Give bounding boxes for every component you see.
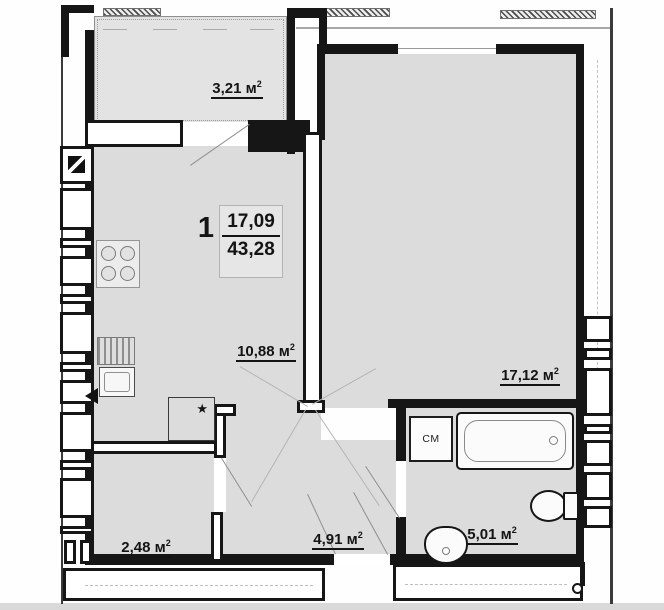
washing-machine-label: СМ	[422, 433, 439, 445]
window-box	[60, 312, 94, 354]
window-box	[584, 440, 612, 466]
window-box	[60, 188, 94, 230]
balcony-sill-dash	[203, 29, 227, 30]
window-box	[584, 348, 612, 360]
balcony-area-text: 3,21 м2	[211, 79, 263, 99]
apartment-number: 1	[186, 212, 214, 245]
toilet-tank-icon	[563, 492, 579, 520]
window-box	[584, 368, 612, 416]
top-outer-line	[296, 27, 612, 29]
bathroom-door-opening	[396, 461, 406, 517]
window-box	[60, 478, 94, 518]
living-window-opening	[398, 44, 496, 54]
balcony-area	[94, 16, 287, 124]
kitchen-top-right-wall	[248, 120, 310, 152]
window-box	[60, 256, 94, 286]
hatch-strip	[103, 8, 161, 16]
apartment-area-summary: 17,09 43,28	[219, 205, 283, 278]
stove-burner-icon	[101, 266, 116, 281]
sink-tap-icon	[442, 547, 450, 555]
window-box	[60, 294, 94, 304]
living-top-wall	[496, 44, 584, 54]
corridor-glass-line	[405, 584, 567, 585]
top-jog-wall	[319, 8, 327, 48]
kitchen-living-partition	[303, 132, 322, 408]
stove-burner-icon	[120, 266, 135, 281]
hatch-strip	[318, 8, 390, 17]
window-box	[60, 362, 94, 372]
wall-segment	[61, 5, 69, 57]
balcony-right-wall	[287, 8, 295, 154]
balcony-sill-dash	[153, 29, 177, 30]
balcony-insulation-border	[97, 19, 284, 121]
storage-area-text: 2,48 м2	[120, 538, 172, 558]
corridor-box	[393, 564, 583, 601]
entry-arrow-icon	[85, 388, 98, 404]
living-room-area-text: 17,12 м2	[500, 366, 560, 386]
storage-partition-arm	[214, 404, 236, 416]
storage-partition-lower	[211, 512, 223, 562]
bathtub-icon	[456, 412, 574, 470]
wall-leg	[80, 540, 92, 564]
apartment-living-area: 17,09	[222, 211, 280, 237]
kitchen-sink-icon	[99, 367, 135, 397]
right-exterior-wall	[576, 44, 584, 565]
kitchen-area-label: 10,88 м2	[216, 342, 316, 362]
storage-top-wall	[85, 441, 222, 454]
bathroom-area-label: 5,01 м2	[442, 525, 542, 545]
entrance-door-opening	[334, 554, 390, 565]
window-box	[60, 238, 94, 248]
balcony-sill-dash	[250, 29, 274, 30]
living-room-area	[322, 50, 580, 408]
hallway-area-text: 4,91 м2	[312, 530, 364, 550]
floor-plan: 3,21 м2 10,88 м2 17,12 м2 2,48 м2 4,91 м…	[0, 0, 664, 610]
corridor-glass-line	[85, 585, 313, 586]
apartment-total-area: 43,28	[220, 239, 282, 261]
bathtub-drain-icon	[549, 436, 558, 445]
vent-shaft-box	[60, 146, 94, 184]
window-box	[60, 460, 94, 470]
wall-leg	[64, 540, 76, 564]
kitchen-sink-basin	[104, 372, 130, 392]
window-box	[60, 412, 94, 452]
balcony-kitchen-wall	[85, 120, 183, 147]
living-left-wall	[317, 44, 325, 140]
vent-shaft-icon	[68, 156, 85, 173]
window-box	[60, 526, 94, 534]
bathroom-left-wall	[396, 399, 406, 461]
storage-door-opening	[214, 458, 226, 512]
star-icon: ★	[196, 401, 208, 417]
window-box	[584, 316, 612, 342]
stove-burner-icon	[120, 246, 135, 261]
bathroom-area-text: 5,01 м2	[466, 525, 518, 545]
window-glazing-line	[398, 48, 496, 49]
column-marker-icon	[572, 583, 583, 594]
page-bottom-shadow	[0, 603, 664, 610]
balcony-area-label: 3,21 м2	[192, 79, 282, 99]
storage-area-label: 2,48 м2	[96, 538, 196, 558]
closet-marker-box: ★	[168, 397, 215, 441]
hallway-area-label: 4,91 м2	[288, 530, 388, 550]
window-box	[584, 472, 612, 500]
living-room-area-label: 17,12 м2	[480, 366, 580, 386]
hatch-strip	[500, 10, 596, 19]
living-bottom-wall	[388, 399, 582, 408]
living-top-wall	[317, 44, 398, 54]
balcony-door-opening	[183, 122, 248, 146]
stove-icon	[96, 240, 140, 288]
kitchen-counter-icon	[97, 337, 135, 365]
kitchen-area-text: 10,88 м2	[236, 342, 296, 362]
toilet-bowl-icon	[530, 490, 567, 522]
washing-machine-icon: СМ	[409, 416, 453, 462]
balcony-sill-dash	[103, 29, 127, 30]
window-box	[584, 424, 612, 434]
stove-burner-icon	[101, 246, 116, 261]
window-box	[584, 506, 612, 528]
